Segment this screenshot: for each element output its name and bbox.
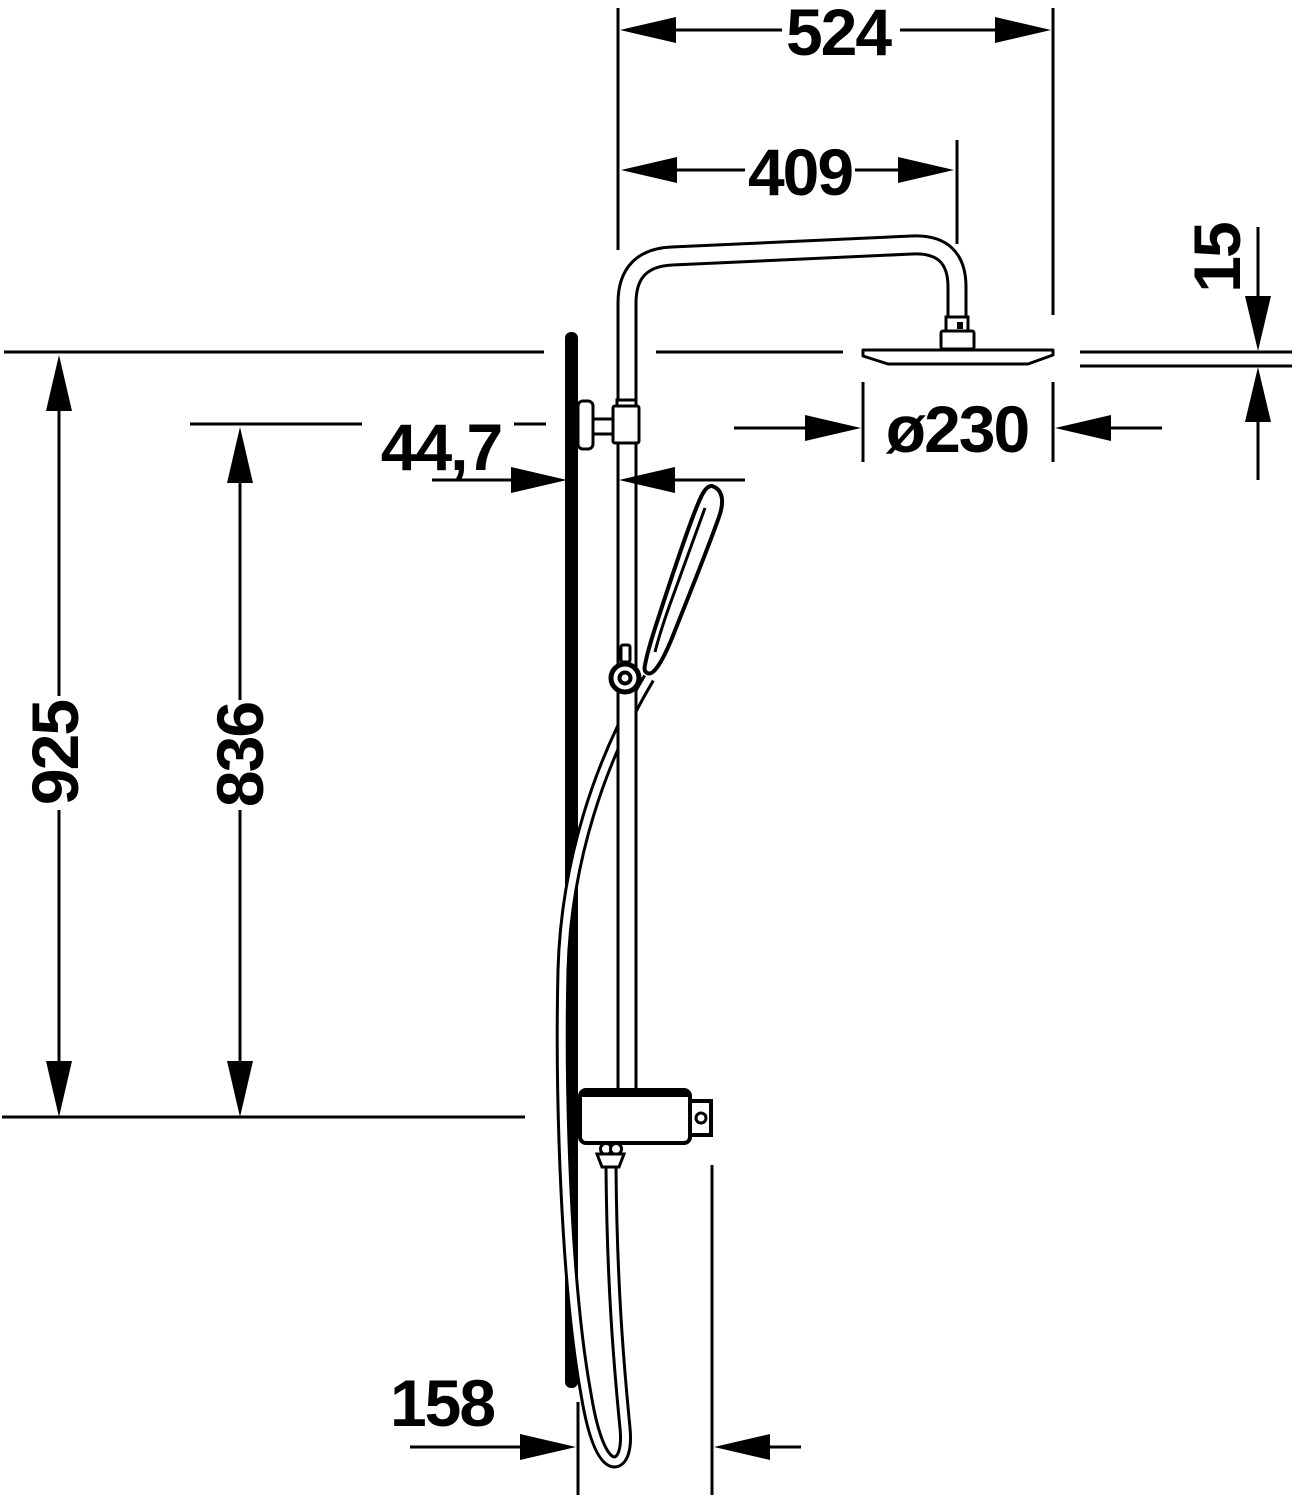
dim-pipe-offset: 44,7 — [190, 410, 745, 493]
shower-head — [863, 317, 1053, 364]
dim-head-diameter: ø230 — [734, 382, 1162, 466]
hand-shower — [645, 486, 722, 673]
dim-label-836: 836 — [203, 703, 277, 807]
dim-label-925: 925 — [18, 701, 92, 805]
dim-label-158: 158 — [390, 1366, 494, 1440]
dim-label-409: 409 — [748, 135, 852, 209]
thermostat-valve — [580, 1090, 711, 1167]
dim-label-524: 524 — [786, 0, 892, 69]
shower-technical-drawing: 524 409 15 ø230 44,7 — [0, 0, 1296, 1500]
drawing-page: 524 409 15 ø230 44,7 — [0, 0, 1296, 1500]
dim-overall-height: 925 — [18, 355, 92, 1117]
dim-bracket-height: 836 — [203, 427, 277, 1117]
wall-bracket — [578, 400, 639, 449]
head-plate — [863, 350, 1053, 364]
hose-outlet-fitting — [597, 1154, 624, 1167]
dim-head-thickness: 15 — [1080, 223, 1292, 480]
dim-label-15: 15 — [1180, 223, 1254, 293]
dim-label-230: ø230 — [886, 392, 1028, 466]
dim-label-44-7: 44,7 — [381, 410, 501, 484]
riser-pipe-and-arm — [627, 245, 957, 1091]
dim-arm-reach: 409 — [621, 135, 957, 244]
